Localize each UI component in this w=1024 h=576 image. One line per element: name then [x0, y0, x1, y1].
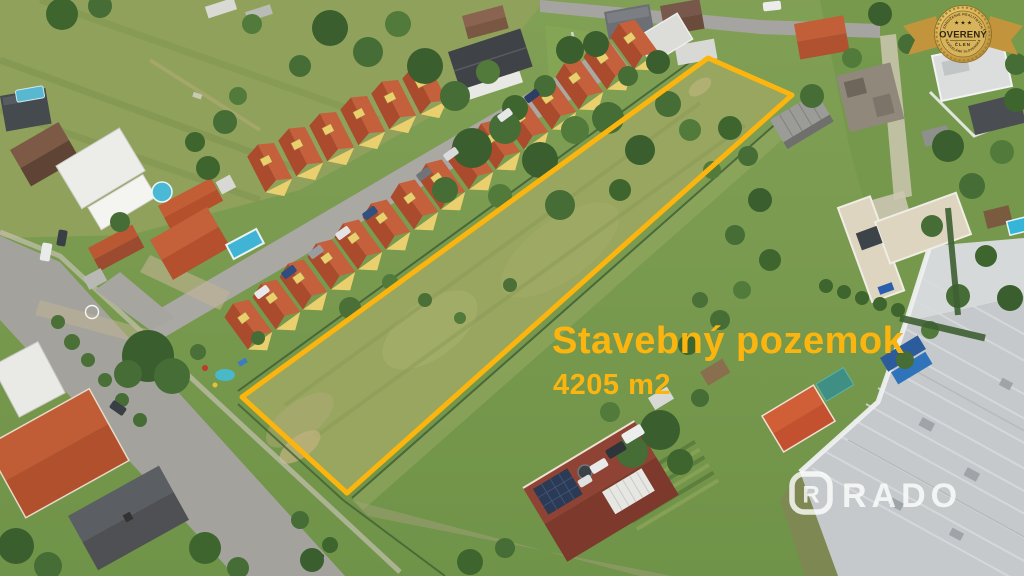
listing-photo: Stavebný pozemok 4205 m2 ZDRUŽENIE REALI…: [0, 0, 1024, 576]
aerial-photo: Stavebný pozemok 4205 m2 ZDRUŽENIE REALI…: [0, 0, 1024, 576]
rado-logo-text: RADO: [842, 477, 962, 515]
plot-area: 4205 m2: [553, 369, 671, 401]
rado-logo-icon-letter: R: [802, 482, 819, 509]
badge-stars-icon: ★ ★ ★: [954, 21, 972, 27]
plot-title: Stavebný pozemok: [552, 320, 905, 362]
badge-title: OVERENÝ: [939, 29, 987, 41]
badge-member: ČLEN: [955, 42, 971, 47]
